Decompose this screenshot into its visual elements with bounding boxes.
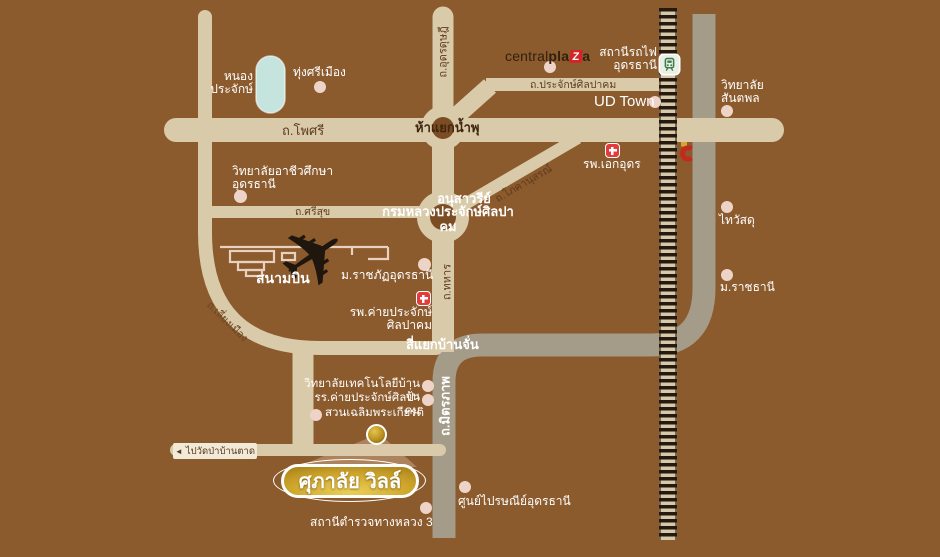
label-road-pho-si: ถ.โพศรี — [282, 124, 324, 137]
label-rajabhat-university: ม.ราชภัฏอุดรธานี — [341, 269, 433, 282]
label-vocational-college: วิทยาลัยอาชีวศึกษา อุดรธานี — [232, 165, 333, 192]
dot-postal-center — [459, 481, 471, 493]
label-chaloem-phrakiat-park: สวนเฉลิมพระเกียรติ — [325, 407, 424, 420]
logo-text-a: a — [582, 48, 590, 64]
train-station-icon — [660, 55, 679, 74]
hospital-cross-icon-aek-udon — [605, 143, 620, 158]
logo-text-central: central — [505, 48, 548, 64]
railway-line — [659, 8, 677, 540]
label-monument-line2: กรมหลวงประจักษ์ศิลปาคม — [378, 205, 518, 234]
dot-thai-watsadu — [721, 201, 733, 213]
dot-vocational-college — [234, 190, 247, 203]
location-map: ✈ centralplaZa หนอง ประจักษ์ ทุ่ง — [0, 0, 940, 557]
nong-prajak-pond — [256, 56, 285, 113]
sign-text: ไปวัดป่าบ้านตาด — [186, 444, 255, 459]
label-road-thahan: ถ.ทหาร — [443, 264, 454, 300]
central-brand-icon — [678, 141, 695, 162]
label-railway-station: สถานีรถไฟ อุดรธานี — [597, 46, 657, 73]
label-aek-udon-hospital: รพ.เอกอุดร — [583, 158, 641, 171]
central-plaza-logo: centralplaZa — [505, 48, 590, 64]
label-ha-yaek-nam-phu: ห้าแยกน้ำพุ — [415, 121, 480, 134]
label-ud-town: UD Town — [594, 94, 655, 111]
badge-pill: ศุภาลัย วิลล์ — [281, 464, 419, 498]
label-postal-center: ศูนย์ไปรษณีย์อุดรธานี — [458, 495, 571, 508]
label-road-prajak-sinlapakhom: ถ.ประจักษ์ศิลปาคม — [530, 80, 616, 91]
label-airport: สนามบิน — [256, 271, 310, 287]
label-thung-si-mueang: ทุ่งศรีเมือง — [293, 66, 346, 79]
label-nong-prajak: หนอง ประจักษ์ — [203, 70, 253, 97]
logo-z-mark-icon: Z — [569, 50, 582, 63]
label-santapol-college: วิทยาลัย สันตพล — [721, 79, 764, 106]
label-thai-watsadu: ไทวัสดุ — [719, 214, 755, 227]
dot-highway-police — [420, 502, 432, 514]
label-si-yaek-ban-chan: สี่แยกบ้านจั่น — [406, 338, 479, 353]
road-network — [0, 0, 940, 557]
label-camp-prajak-hospital: รพ.ค่ายประจักษ์ ศิลปาคม — [332, 306, 432, 333]
label-road-si-suk: ถ.ศรีสุข — [295, 207, 330, 218]
hospital-cross-icon-camp-prajak — [416, 291, 431, 306]
dot-ban-chan-tech-college — [422, 380, 434, 392]
wat-pa-ban-tat-sign: ◄ ไปวัดป่าบ้านตาด — [173, 443, 257, 459]
left-arrow-icon: ◄ — [175, 447, 183, 456]
dot-thung-si-mueang — [314, 81, 326, 93]
label-highway-police: สถานีตำรวจทางหลวง 3 — [310, 516, 433, 529]
label-ratchathani-university: ม.ราชธานี — [720, 281, 775, 294]
dot-camp-prajak-school — [422, 394, 434, 406]
project-badge: ศุภาลัย วิลล์ — [273, 459, 427, 503]
project-name: ศุภาลัย วิลล์ — [299, 465, 401, 497]
label-road-udon-dutsadi: ถ.อุดรดุษฎี — [439, 26, 450, 77]
project-location-marker — [366, 424, 387, 445]
dot-santapol-college — [721, 105, 733, 117]
label-road-mittraphap: ถ.มิตรภาพ — [439, 376, 454, 436]
logo-text-pla: pla — [548, 48, 569, 64]
